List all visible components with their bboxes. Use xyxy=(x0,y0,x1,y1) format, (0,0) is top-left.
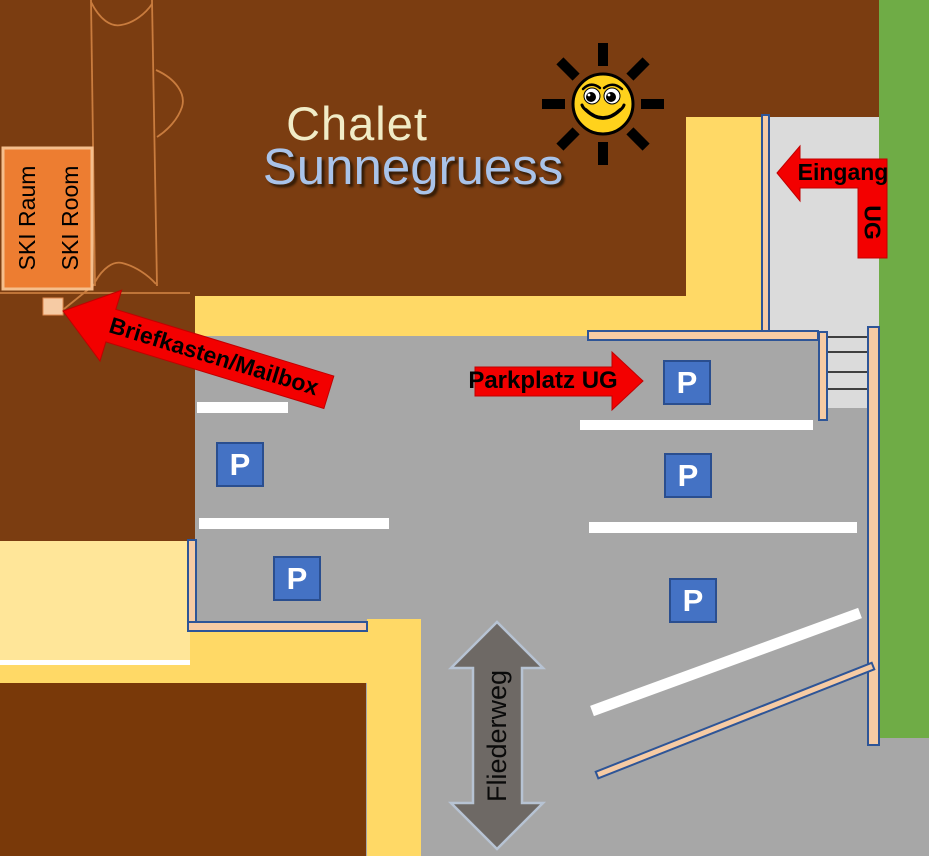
garage-arrow-label: Parkplatz UG xyxy=(476,366,610,396)
wall-east xyxy=(868,327,879,745)
lower-path-west xyxy=(0,665,190,683)
wall-stairs-left xyxy=(819,332,827,420)
lower-building-roof xyxy=(0,683,366,856)
wall-west-vertical xyxy=(188,540,196,624)
wall-west-horizontal xyxy=(188,622,367,631)
ski-room-label-de: SKI Raum xyxy=(13,148,41,288)
parking-line xyxy=(580,420,813,430)
parking-line xyxy=(199,518,389,529)
lower-terrace xyxy=(0,541,190,661)
grass-strip xyxy=(879,0,929,738)
parking-sign: P xyxy=(273,556,321,601)
map-title-line2: Sunnegruess xyxy=(233,137,593,196)
lower-path-middle xyxy=(190,631,367,683)
wall-entrance-west xyxy=(762,115,769,336)
parking-sign: P xyxy=(216,442,264,487)
parking-sign: P xyxy=(664,453,712,498)
wall-parking-north xyxy=(588,331,818,340)
ski-room-label-en: SKI Room xyxy=(56,148,84,288)
site-map-drawing xyxy=(0,0,929,856)
parking-sign: P xyxy=(663,360,711,405)
entrance-arrow-sublabel: UG xyxy=(859,183,886,263)
site-map: Chalet Sunnegruess SKI Raum SKI Room Bri… xyxy=(0,0,929,856)
parking-sign: P xyxy=(669,578,717,623)
parking-line xyxy=(197,402,288,413)
terrace-edge-line xyxy=(0,660,190,665)
mailbox-marker xyxy=(43,298,63,315)
lower-path-vertical xyxy=(367,619,421,856)
street-name-label: Fliederweg xyxy=(482,621,512,851)
parking-line xyxy=(589,522,857,533)
